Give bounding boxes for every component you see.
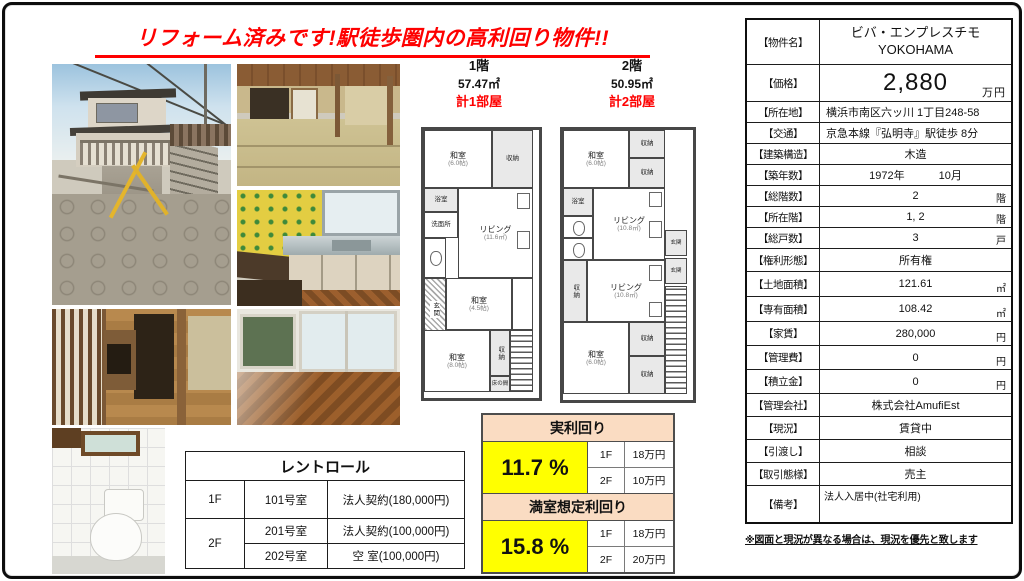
- pillar: [335, 74, 340, 137]
- rentroll-status: 空 室(100,000円): [328, 544, 465, 569]
- property-table: 【物件名】 ビバ・エンプレスチモ YOKOHAMA 【価格】 2,880 万円 …: [745, 18, 1013, 524]
- stairs-1f: [510, 330, 533, 392]
- photo-toilet: [52, 428, 165, 574]
- pillar: [387, 76, 393, 144]
- window-bright: [299, 311, 397, 371]
- sink-icon: [649, 265, 662, 281]
- access-label: 【交通】: [747, 123, 820, 143]
- name-label: 【物件名】: [747, 20, 820, 64]
- row-units: 【総戸数】 3 戸: [747, 228, 1011, 249]
- reserve-label: 【積立金】: [747, 370, 820, 393]
- price-unit: 万円: [982, 84, 1006, 100]
- room-washitsu-8-1f: 和室 (8.0帖): [424, 330, 490, 392]
- reserve-value: 0 円: [820, 370, 1011, 393]
- status-label: 【現況】: [747, 417, 820, 439]
- row-access: 【交通】 京急本線『弘明寺』駅徒歩 8分: [747, 123, 1011, 144]
- units-unit: 戸: [996, 232, 1006, 247]
- land-value: 121.61 ㎡: [820, 272, 1011, 296]
- address-label: 【所在地】: [747, 102, 820, 122]
- row-notes: 【備考】 法人入居中(社宅利用): [747, 486, 1011, 522]
- cabinets: [289, 255, 400, 292]
- row-status: 【現況】 賃貸中: [747, 417, 1011, 440]
- pillar: [177, 309, 186, 425]
- breakdown-row: 2F 20万円: [588, 547, 673, 572]
- row-built: 【築年数】 1972年 10月: [747, 165, 1011, 186]
- toilet-window: [81, 431, 140, 456]
- actual-yield-header: 実利回り: [483, 415, 673, 442]
- rentroll-room: 202号室: [245, 544, 328, 569]
- slat-door: [52, 309, 106, 425]
- room-washroom-1f: 洗面所: [424, 212, 458, 238]
- price-label: 【価格】: [747, 65, 820, 101]
- stove-icon: [517, 193, 530, 209]
- rent-unit: 円: [996, 329, 1006, 344]
- row-land: 【土地面積】 121.61 ㎡: [747, 272, 1011, 297]
- price-value: 2,880 万円: [820, 65, 1011, 101]
- stove-icon: [649, 302, 662, 317]
- rentroll-floor: 2F: [186, 519, 245, 569]
- side-room: [188, 316, 231, 390]
- rights-value: 所有権: [820, 249, 1011, 271]
- tatami-floor: [237, 119, 400, 186]
- room-wc2-2f: [563, 238, 593, 260]
- toilet-bowl: [90, 513, 142, 562]
- room-wc1-2f: [563, 216, 593, 238]
- flyer-page: リフォーム済みです!駅徒歩圏内の高利回り物件!!: [0, 0, 1024, 581]
- sink-icon: [649, 221, 662, 238]
- floor-sheen: [237, 372, 400, 425]
- floors-value: 2 階: [820, 186, 1011, 206]
- tatami-seam: [237, 166, 400, 168]
- row-mgmtco: 【管理会社】 株式会社AmufiEst: [747, 394, 1011, 417]
- building-label: 【専有面積】: [747, 297, 820, 321]
- room-count-1f: 計1部屋: [424, 93, 534, 111]
- floorplan-2f-header: 2階 50.95㎡ 計2部屋: [577, 58, 687, 111]
- wood-ceiling: [237, 64, 400, 86]
- shelf-cubby: [107, 344, 130, 374]
- built-value: 1972年 10月: [820, 165, 1011, 185]
- row-deal: 【取引態様】 売主: [747, 463, 1011, 486]
- row-rights: 【権利形態】 所有権: [747, 249, 1011, 272]
- room-tokonoma-1f: 床の間: [490, 376, 510, 392]
- status-value: 賃貸中: [820, 417, 1011, 439]
- dark-floor-left: [237, 280, 302, 306]
- floor-area-1f: 57.47㎡: [424, 75, 534, 93]
- rentroll-room: 101号室: [245, 481, 328, 519]
- balcony-rail: [80, 140, 176, 165]
- room-closet1-2f: 収納: [629, 130, 665, 158]
- room-closet2-2f: 収納: [629, 158, 665, 188]
- row-rent: 【家賃】 280,000 円: [747, 322, 1011, 346]
- notes-value: 法人入居中(社宅利用): [820, 486, 1011, 522]
- deal-label: 【取引態様】: [747, 463, 820, 485]
- stairs-2f: [665, 286, 687, 394]
- room-closet4-2f: 収納: [629, 356, 665, 394]
- mgmtco-label: 【管理会社】: [747, 394, 820, 416]
- structure-value: 木造: [820, 144, 1011, 164]
- full-yield-header: 満室想定利回り: [483, 494, 673, 521]
- rentroll-floor: 1F: [186, 481, 245, 519]
- breakdown-row: 2F 10万円: [588, 468, 673, 493]
- access-value: 京急本線『弘明寺』駅徒歩 8分: [820, 123, 1011, 143]
- room-entrance2-2f: 玄関: [665, 258, 687, 284]
- dark-hallway: [134, 314, 173, 400]
- name-value: ビバ・エンプレスチモ YOKOHAMA: [820, 20, 1011, 64]
- rentroll-table: レントロール 1F 101号室 法人契約(180,000円) 2F 201号室 …: [185, 451, 465, 569]
- floorplan-1f-header: 1階 57.47㎡ 計1部屋: [424, 58, 534, 111]
- row-located: 【所在階】 1, 2 階: [747, 207, 1011, 228]
- built-label: 【築年数】: [747, 165, 820, 185]
- room-closet-top-1f: 収納: [492, 130, 533, 188]
- located-value: 1, 2 階: [820, 207, 1011, 227]
- tatami-seam: [237, 145, 400, 147]
- actual-yield-breakdown: 1F 18万円 2F 10万円: [588, 442, 673, 493]
- toilet-icon: [573, 221, 585, 236]
- handover-label: 【引渡し】: [747, 440, 820, 462]
- full-yield-breakdown: 1F 18万円 2F 20万円: [588, 521, 673, 572]
- room-closet-btm-1f: 収納: [490, 330, 510, 376]
- land-label: 【土地面積】: [747, 272, 820, 296]
- room-bath-2f: 浴室: [563, 188, 593, 216]
- floor-area-2f: 50.95㎡: [577, 75, 687, 93]
- floorplan-1f: myhome-cloud myhome-cloud 和室 (6.0帖) 収納 浴…: [421, 127, 542, 401]
- mgmtfee-label: 【管理費】: [747, 346, 820, 369]
- row-address: 【所在地】 横浜市南区六ッ川 1丁目248-58: [747, 102, 1011, 123]
- rentroll-title: レントロール: [186, 452, 465, 481]
- floorplan-2f: myhome-cloud myhome-cloud 和室 (6.0帖) 収納 収…: [560, 127, 696, 403]
- breakdown-row: 1F 18万円: [588, 442, 673, 468]
- building-value: 108.42 ㎡: [820, 297, 1011, 321]
- disclaimer-note: ※図面と現況が異なる場合は、現況を優先と致します: [745, 531, 1013, 546]
- row-mgmtfee: 【管理費】 0 円: [747, 346, 1011, 370]
- mgmtfee-value: 0 円: [820, 346, 1011, 369]
- breakdown-row: 1F 18万円: [588, 521, 673, 547]
- units-label: 【総戸数】: [747, 228, 820, 248]
- full-yield-value: 15.8 %: [483, 521, 588, 572]
- wood-beam: [52, 428, 81, 448]
- structure-label: 【建築構造】: [747, 144, 820, 164]
- row-handover: 【引渡し】 相談: [747, 440, 1011, 463]
- floors-unit: 階: [996, 190, 1006, 205]
- units-value: 3 戸: [820, 228, 1011, 248]
- photo-entryway: [52, 309, 231, 425]
- actual-yield-body: 11.7 % 1F 18万円 2F 10万円: [483, 442, 673, 494]
- building-unit: ㎡: [996, 305, 1006, 320]
- floors-label: 【総階数】: [747, 186, 820, 206]
- floor-label-1f: 1階: [424, 58, 534, 75]
- row-reserve: 【積立金】 0 円: [747, 370, 1011, 394]
- room-corridor-1f: [512, 278, 533, 330]
- row-structure: 【建築構造】 木造: [747, 144, 1011, 165]
- rentroll-status: 法人契約(180,000円): [328, 481, 465, 519]
- stove-icon: [649, 192, 662, 207]
- rentroll-room: 201号室: [245, 519, 328, 544]
- room-washitsu-45-1f: 和室 (4.5帖): [446, 278, 512, 330]
- mgmtfee-unit: 円: [996, 353, 1006, 368]
- room-living2-2f: リビング (10.8㎡): [587, 260, 665, 322]
- photo-flooring-room: [237, 309, 400, 425]
- land-unit: ㎡: [996, 280, 1006, 295]
- room-washitsu-btm-2f: 和室 (6.0帖): [563, 322, 629, 394]
- window-mullion: [345, 311, 348, 371]
- room-closet-mid-2f: 収納: [563, 260, 587, 322]
- notes-label: 【備考】: [747, 486, 820, 522]
- room-closet3-2f: 収納: [629, 322, 665, 356]
- row-floors: 【総階数】 2 階: [747, 186, 1011, 207]
- rights-label: 【権利形態】: [747, 249, 820, 271]
- room-washitsu-6-1f: 和室 (6.0帖): [424, 130, 492, 188]
- handover-value: 相談: [820, 440, 1011, 462]
- mgmtco-value: 株式会社AmufiEst: [820, 394, 1011, 416]
- window: [96, 103, 138, 123]
- yield-table: 実利回り 11.7 % 1F 18万円 2F 10万円 満室想定利回り 15.8…: [481, 413, 675, 574]
- toilet-icon: [430, 251, 442, 266]
- row-building: 【専有面積】 108.42 ㎡: [747, 297, 1011, 322]
- actual-yield-value: 11.7 %: [483, 442, 588, 493]
- toilet-icon: [573, 243, 585, 258]
- reserve-unit: 円: [996, 377, 1006, 392]
- photo-kitchen: [237, 190, 400, 306]
- room-entrance1-2f: 玄関: [665, 230, 687, 256]
- side-wall: [345, 86, 387, 125]
- herringbone-floor: [302, 290, 400, 306]
- full-yield-body: 15.8 % 1F 18万円 2F 20万円: [483, 521, 673, 572]
- room-living1-2f: リビング (10.8㎡): [593, 188, 665, 260]
- deal-value: 売主: [820, 463, 1011, 485]
- located-label: 【所在階】: [747, 207, 820, 227]
- room-washitsu-top-2f: 和室 (6.0帖): [563, 130, 629, 188]
- floor-label-2f: 2階: [577, 58, 687, 75]
- located-unit: 階: [996, 211, 1006, 226]
- room-living-1f: リビング (11.6㎡): [458, 188, 533, 278]
- rentroll-status: 法人契約(100,000円): [328, 519, 465, 544]
- photo-japanese-room: [237, 64, 400, 186]
- rent-value: 280,000 円: [820, 322, 1011, 345]
- address-value: 横浜市南区六ッ川 1丁目248-58: [820, 102, 1011, 122]
- concrete-path: [52, 194, 231, 305]
- kitchen-window: [322, 190, 400, 236]
- room-toilet-1f: [424, 238, 446, 278]
- sink-icon: [517, 231, 530, 249]
- photo-exterior: [52, 64, 231, 305]
- room-bath-1f: 浴室: [424, 188, 458, 212]
- headline: リフォーム済みです!駅徒歩圏内の高利回り物件!!: [95, 22, 650, 58]
- fence: [170, 124, 231, 146]
- row-name: 【物件名】 ビバ・エンプレスチモ YOKOHAMA: [747, 20, 1011, 65]
- rent-label: 【家賃】: [747, 322, 820, 345]
- row-price: 【価格】 2,880 万円: [747, 65, 1011, 102]
- sink: [332, 240, 371, 252]
- window-green: [240, 314, 295, 370]
- room-count-2f: 計2部屋: [577, 93, 687, 111]
